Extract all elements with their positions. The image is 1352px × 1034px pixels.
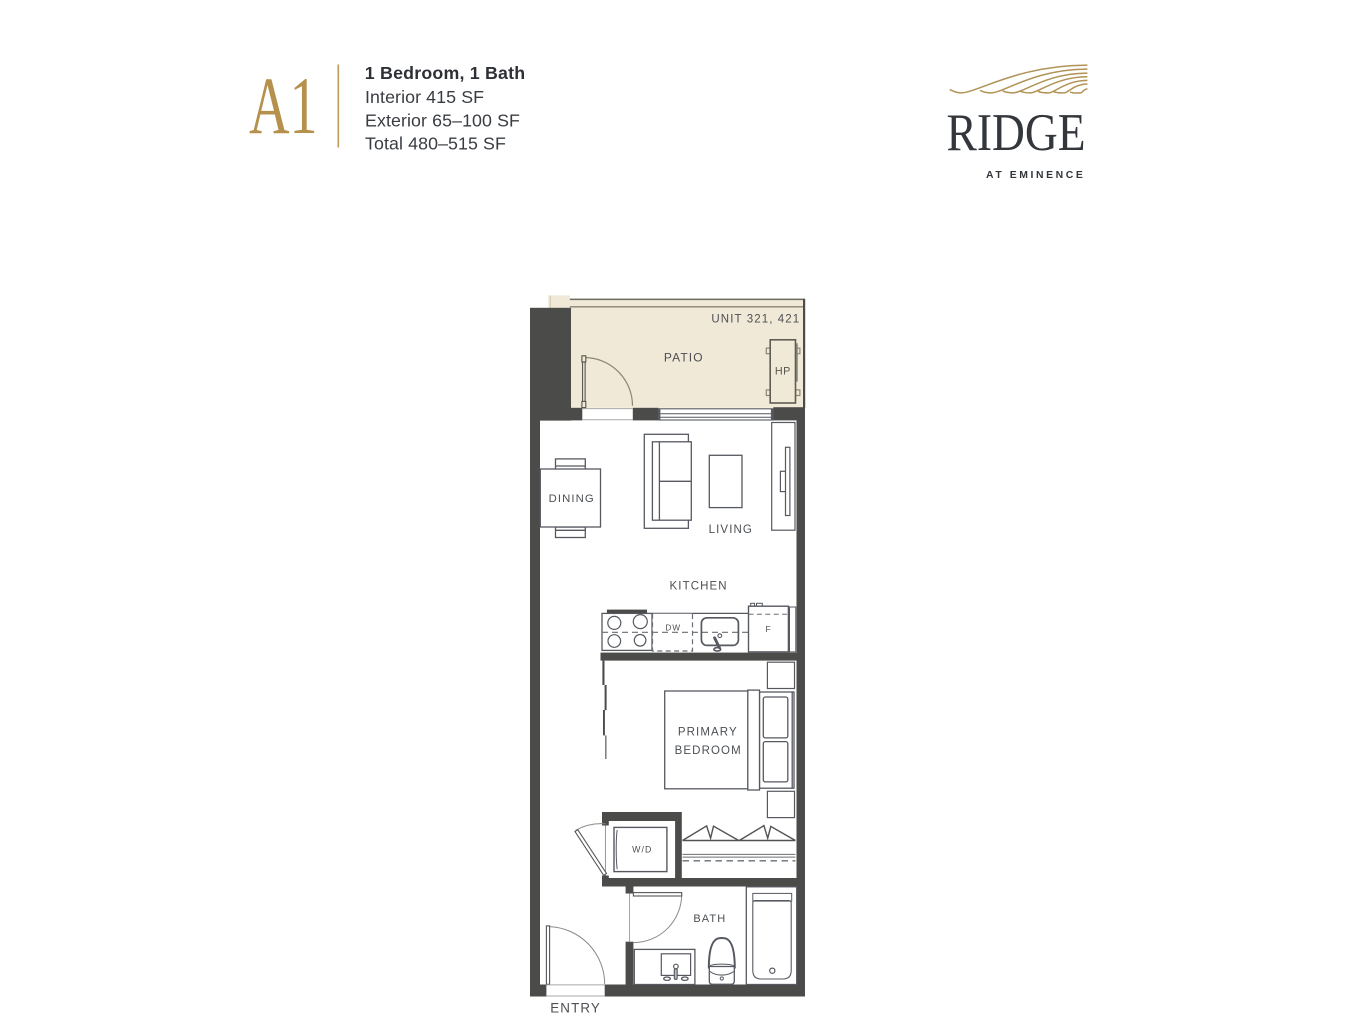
svg-text:PATIO: PATIO xyxy=(664,351,704,365)
svg-text:DW: DW xyxy=(665,623,681,632)
svg-text:BATH: BATH xyxy=(693,913,726,925)
svg-text:Exterior 65–100 SF: Exterior 65–100 SF xyxy=(365,111,520,131)
svg-text:Interior 415 SF: Interior 415 SF xyxy=(365,87,484,107)
svg-text:ENTRY: ENTRY xyxy=(550,1001,601,1016)
svg-text:W/D: W/D xyxy=(632,845,652,855)
svg-text:RIDGE: RIDGE xyxy=(947,104,1086,162)
svg-text:LIVING: LIVING xyxy=(709,524,753,536)
svg-text:UNIT 321, 421: UNIT 321, 421 xyxy=(711,314,800,326)
svg-text:F: F xyxy=(766,624,772,634)
svg-text:1 Bedroom, 1 Bath: 1 Bedroom, 1 Bath xyxy=(365,63,526,83)
svg-text:HP: HP xyxy=(775,366,791,378)
svg-text:KITCHEN: KITCHEN xyxy=(670,580,728,592)
svg-text:BEDROOM: BEDROOM xyxy=(675,745,742,757)
svg-text:A1: A1 xyxy=(249,60,318,151)
svg-text:PRIMARY: PRIMARY xyxy=(678,726,738,738)
svg-text:Total 480–515 SF: Total 480–515 SF xyxy=(365,133,506,153)
svg-text:DINING: DINING xyxy=(549,493,595,505)
svg-text:AT EMINENCE: AT EMINENCE xyxy=(986,170,1085,181)
